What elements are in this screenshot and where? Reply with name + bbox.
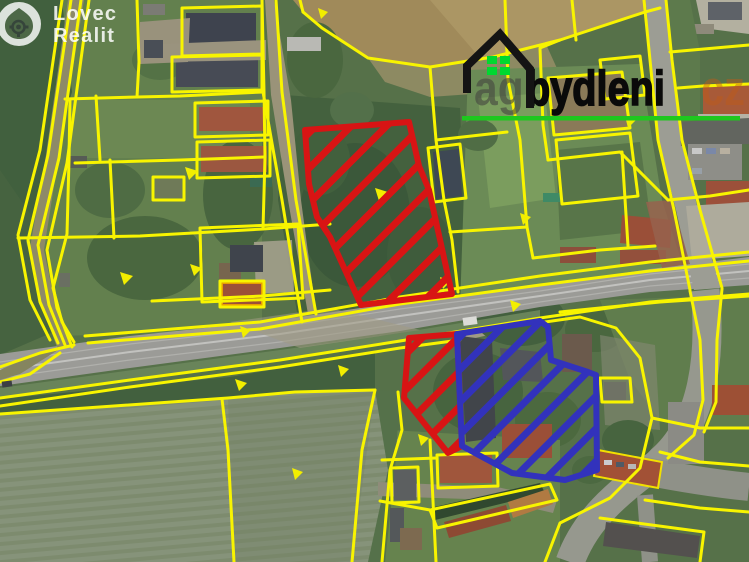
svg-text:Lovec: Lovec [53,3,117,25]
svg-text:cz: cz [701,61,745,116]
svg-text:bydleni: bydleni [526,62,665,116]
svg-text:Realit: Realit [53,25,115,47]
svg-text:ag: ag [474,60,524,115]
